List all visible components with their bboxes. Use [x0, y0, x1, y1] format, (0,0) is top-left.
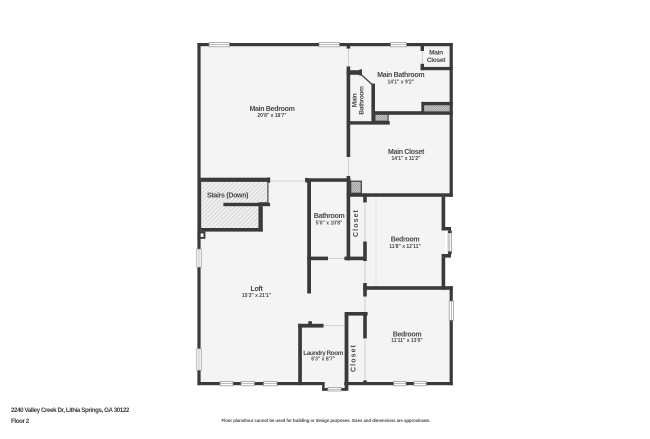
svg-text:11'8" x 12'11": 11'8" x 12'11" — [389, 244, 421, 250]
svg-text:15'3" x 21'1": 15'3" x 21'1" — [242, 293, 272, 299]
svg-text:Closet: Closet — [427, 57, 446, 64]
svg-text:Main: Main — [351, 93, 358, 107]
svg-text:Main Bedroom: Main Bedroom — [249, 106, 294, 113]
svg-text:Main: Main — [429, 49, 443, 56]
svg-text:14'1" x 11'2": 14'1" x 11'2" — [391, 156, 421, 162]
svg-text:Bathroom: Bathroom — [359, 86, 366, 115]
svg-text:11'11" x 13'0": 11'11" x 13'0" — [391, 338, 423, 344]
svg-text:Loft: Loft — [250, 286, 263, 293]
svg-text:20'8" x 18'7": 20'8" x 18'7" — [257, 113, 287, 119]
svg-text:Closet: Closet — [350, 344, 357, 372]
svg-text:Main Bathroom: Main Bathroom — [377, 72, 424, 79]
svg-text:Bedroom: Bedroom — [391, 237, 420, 244]
svg-text:Closet: Closet — [353, 209, 360, 237]
svg-text:6'3" x 8'7": 6'3" x 8'7" — [311, 357, 335, 363]
svg-text:14'1" x 9'2": 14'1" x 9'2" — [388, 80, 415, 86]
svg-text:5'0" x 10'8": 5'0" x 10'8" — [316, 221, 343, 227]
svg-text:Bathroom: Bathroom — [314, 213, 345, 220]
svg-text:Stairs (Down): Stairs (Down) — [207, 193, 248, 200]
